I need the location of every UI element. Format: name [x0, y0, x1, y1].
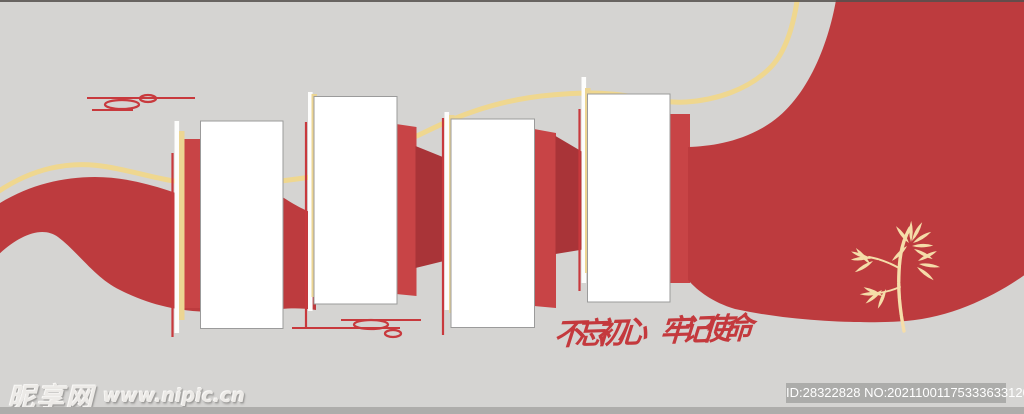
slogan-part-1: 不忘初心	[553, 316, 639, 352]
watermark-site-url: www.nipic.cn	[103, 385, 245, 407]
design-preview-canvas: 不忘初心 牢记使命 昵享网 www.nipic.cn ID:28322828 N…	[0, 0, 1024, 414]
display-board-1	[201, 121, 284, 329]
footer-strip	[0, 407, 1024, 414]
display-board-4	[588, 94, 671, 302]
ribbon-fold	[556, 136, 587, 254]
image-id-badge: ID:28322828 NO:20211001175333633120	[786, 383, 1006, 403]
slogan-part-2: 牢记使命	[659, 312, 745, 348]
ribbon-fold	[416, 146, 445, 268]
ribbon-backing	[396, 124, 417, 296]
display-board-2	[314, 97, 397, 305]
ribbon-backing	[534, 129, 556, 308]
display-board-3	[451, 119, 535, 328]
ribbon-backing	[670, 114, 690, 283]
top-border	[0, 0, 1024, 2]
culture-wall-artwork	[0, 0, 1024, 414]
